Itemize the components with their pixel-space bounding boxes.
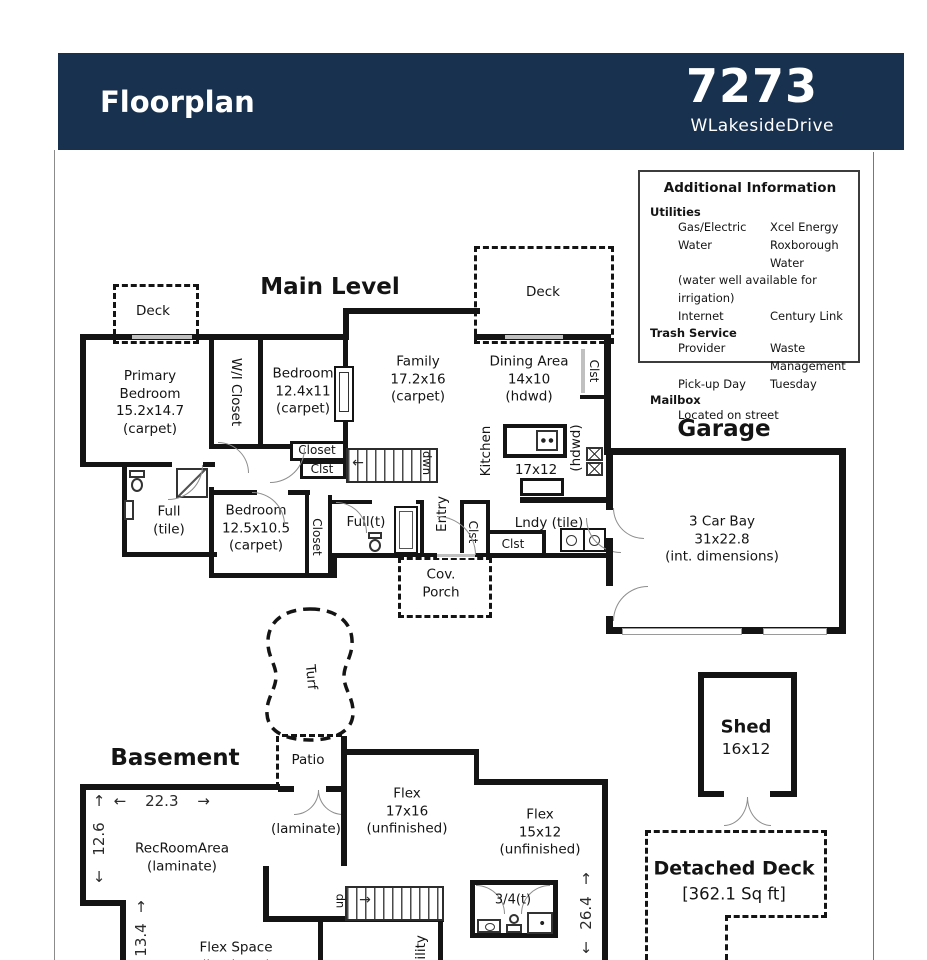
wall	[120, 900, 126, 960]
door-arc	[747, 797, 771, 826]
basement-bath-label: 3/4(t)	[495, 893, 531, 910]
detached-deck-outline	[824, 830, 827, 918]
garage-heading: Garage	[677, 416, 770, 442]
info-note: (water well available for irrigation)	[678, 272, 850, 308]
garage-label: 3 Car Bay 31x22.8 (int. dimensions)	[665, 514, 779, 567]
cov-porch-label: Cov. Porch	[422, 566, 459, 601]
family-label: Family 17.2x16 (carpet)	[390, 354, 445, 407]
wall	[438, 916, 443, 960]
wall	[606, 448, 846, 455]
door-arc	[252, 492, 285, 525]
wall	[328, 495, 332, 575]
arrow-right: →	[197, 792, 210, 810]
stairs-down-label: dwn	[420, 451, 434, 475]
stairs-up-arrow: →	[359, 892, 371, 908]
fireplace-icon	[334, 366, 354, 422]
toilet-icon	[368, 532, 382, 539]
info-value: Tuesday	[770, 376, 817, 394]
basement-heading: Basement	[110, 745, 239, 771]
wall	[486, 500, 490, 556]
dim-12-6: 12.6	[90, 822, 108, 855]
sink-icon	[124, 500, 134, 520]
info-row: Gas/Electric Xcel Energy	[650, 219, 850, 237]
appliance-icon	[586, 447, 603, 461]
primary-bedroom-label: Primary Bedroom 15.2x14.7 (carpet)	[116, 368, 184, 438]
door-arc	[724, 797, 748, 826]
wall	[278, 786, 294, 792]
shed-size-label: 16x12	[722, 739, 771, 759]
dining-label: Dining Area 14x10 (hdwd)	[490, 354, 569, 407]
toilet-icon	[477, 919, 501, 933]
garage-door-marker	[763, 628, 827, 635]
wall	[80, 334, 86, 467]
arrow-left: ←	[114, 792, 127, 810]
kitchen-size-label: 17x12	[515, 462, 557, 480]
wall	[420, 500, 424, 557]
detached-deck-outline	[725, 915, 728, 960]
wall	[343, 308, 480, 314]
flex2-label: Flex 15x12 (unfinished)	[500, 807, 581, 860]
dim-26-4: 26.4	[577, 896, 595, 929]
wall	[80, 334, 348, 340]
patio-dashed-wall	[282, 734, 342, 737]
bathtub-icon	[394, 506, 418, 554]
rec-room-label: RecRoomArea (laminate)	[135, 840, 229, 875]
dim-value: 22.3	[145, 792, 178, 810]
stove-icon	[536, 430, 558, 451]
door-arc	[318, 790, 343, 815]
wall	[258, 334, 263, 449]
door-arc	[613, 586, 648, 621]
arrow-down: ↓	[580, 939, 593, 957]
info-label: Gas/Electric	[678, 219, 770, 237]
bedroom2-label: Bedroom 12.4x11 (carpet)	[272, 366, 333, 419]
address-street: WLakesideDrive	[690, 116, 834, 136]
info-label: Water	[678, 237, 770, 273]
wall	[318, 920, 323, 960]
info-label: Internet	[678, 308, 770, 326]
detached-deck-outline	[645, 830, 827, 833]
hdwd-label: (hdwd)	[568, 424, 584, 471]
page-title: Floorplan	[100, 85, 255, 119]
door-arc	[336, 502, 367, 533]
closet3-label: Closet	[310, 518, 324, 555]
laminate-label: (laminate)	[271, 821, 341, 839]
wall	[209, 334, 214, 449]
wall	[80, 784, 280, 790]
info-row: Internet Century Link	[650, 308, 850, 326]
clst-label: Clst	[311, 462, 334, 478]
toilet-icon	[131, 478, 143, 492]
arrow-up: ↑	[135, 898, 148, 916]
shed-name-label: Shed	[721, 715, 772, 738]
info-value: Roxborough Water	[770, 237, 850, 273]
wall	[122, 552, 217, 557]
kitchen-label: Kitchen	[478, 426, 494, 477]
turf-label: Turf	[302, 664, 320, 690]
wall	[470, 880, 475, 938]
info-title: Additional Information	[650, 180, 850, 196]
header-bar: Floorplan 7273 WLakesideDrive	[58, 53, 904, 150]
wall	[580, 395, 606, 399]
window-marker	[132, 335, 192, 339]
info-value: Century Link	[770, 308, 843, 326]
door-gap	[606, 586, 613, 616]
wall	[341, 736, 347, 866]
sliding-door-marker	[581, 349, 585, 393]
wall	[263, 866, 269, 922]
info-label: Pick-up Day	[678, 376, 770, 394]
arrow-up: ↑	[93, 792, 106, 810]
deck-left-label: Deck	[136, 303, 170, 321]
main-level-heading: Main Level	[260, 274, 399, 300]
wall	[553, 880, 558, 938]
info-value: Xcel Energy	[770, 219, 838, 237]
utilities-heading: Utilities	[650, 205, 850, 219]
page-left-edge	[54, 150, 55, 960]
wall	[839, 448, 846, 634]
utility-label: Utility	[413, 935, 429, 960]
info-row: Water Roxborough Water	[650, 237, 850, 273]
toilet-icon	[129, 470, 145, 478]
detached-deck-outline	[725, 915, 827, 918]
flex1-label: Flex 17x16 (unfinished)	[367, 786, 448, 839]
detached-deck-name-label: Detached Deck	[653, 857, 814, 882]
detached-deck-size-label: [362.1 Sq ft]	[682, 883, 786, 904]
dining-clst-label: Clst	[587, 360, 601, 383]
page-right-edge	[873, 152, 874, 960]
mailbox-heading: Mailbox	[650, 393, 850, 407]
wall	[80, 784, 86, 906]
sink-icon	[506, 924, 522, 933]
toilet-icon	[369, 539, 381, 552]
dim-13-4: 13.4	[132, 923, 150, 956]
floorplan-page: Floorplan 7273 WLakesideDrive Additional…	[0, 0, 927, 960]
wall	[341, 749, 479, 755]
wall	[203, 462, 215, 467]
deck-right-label: Deck	[526, 284, 560, 302]
window-marker	[505, 335, 563, 339]
shower-icon	[527, 912, 553, 934]
wall	[602, 779, 608, 960]
info-value: Waste Management	[770, 340, 850, 376]
appliance-icon	[586, 462, 603, 476]
arrow-up: ↑	[580, 870, 593, 888]
additional-info-box: Additional Information Utilities Gas/Ele…	[638, 170, 860, 363]
wall	[209, 573, 337, 578]
counter-sink-icon	[520, 478, 564, 496]
garage-door-marker	[622, 628, 742, 635]
patio-dashed-wall	[276, 736, 279, 788]
laundry-label: Lndy (tile)	[515, 515, 584, 533]
wall	[305, 495, 309, 575]
wall	[209, 490, 257, 495]
info-label: Provider	[678, 340, 770, 376]
door-arc	[294, 790, 319, 815]
wall	[474, 779, 608, 785]
address-number: 7273	[686, 59, 818, 113]
full-bath-label: Full (tile)	[153, 503, 185, 538]
wall	[209, 487, 214, 555]
patio-label: Patio	[291, 752, 324, 770]
wi-closet-label: W/I Closet	[228, 358, 244, 426]
stairs-down-arrow: ←	[352, 455, 364, 471]
dim-22-3: ← 22.3 →	[114, 792, 210, 810]
wall	[542, 530, 546, 556]
hall-clst-label: Clst	[502, 537, 525, 553]
arrow-down: ↓	[93, 868, 106, 886]
wall	[520, 497, 611, 503]
wall	[460, 500, 490, 504]
sink-icon	[509, 914, 519, 924]
trash-heading: Trash Service	[650, 326, 850, 340]
door-gap	[606, 510, 613, 538]
stairs-up-label: up	[332, 894, 346, 909]
flex-space-label: Flex Space (laminate)	[199, 939, 272, 960]
wall	[470, 880, 558, 885]
wall	[332, 556, 337, 578]
info-row: Provider Waste Management	[650, 340, 850, 376]
info-row: Pick-up Day Tuesday	[650, 376, 850, 394]
detached-deck-outline	[645, 830, 648, 960]
